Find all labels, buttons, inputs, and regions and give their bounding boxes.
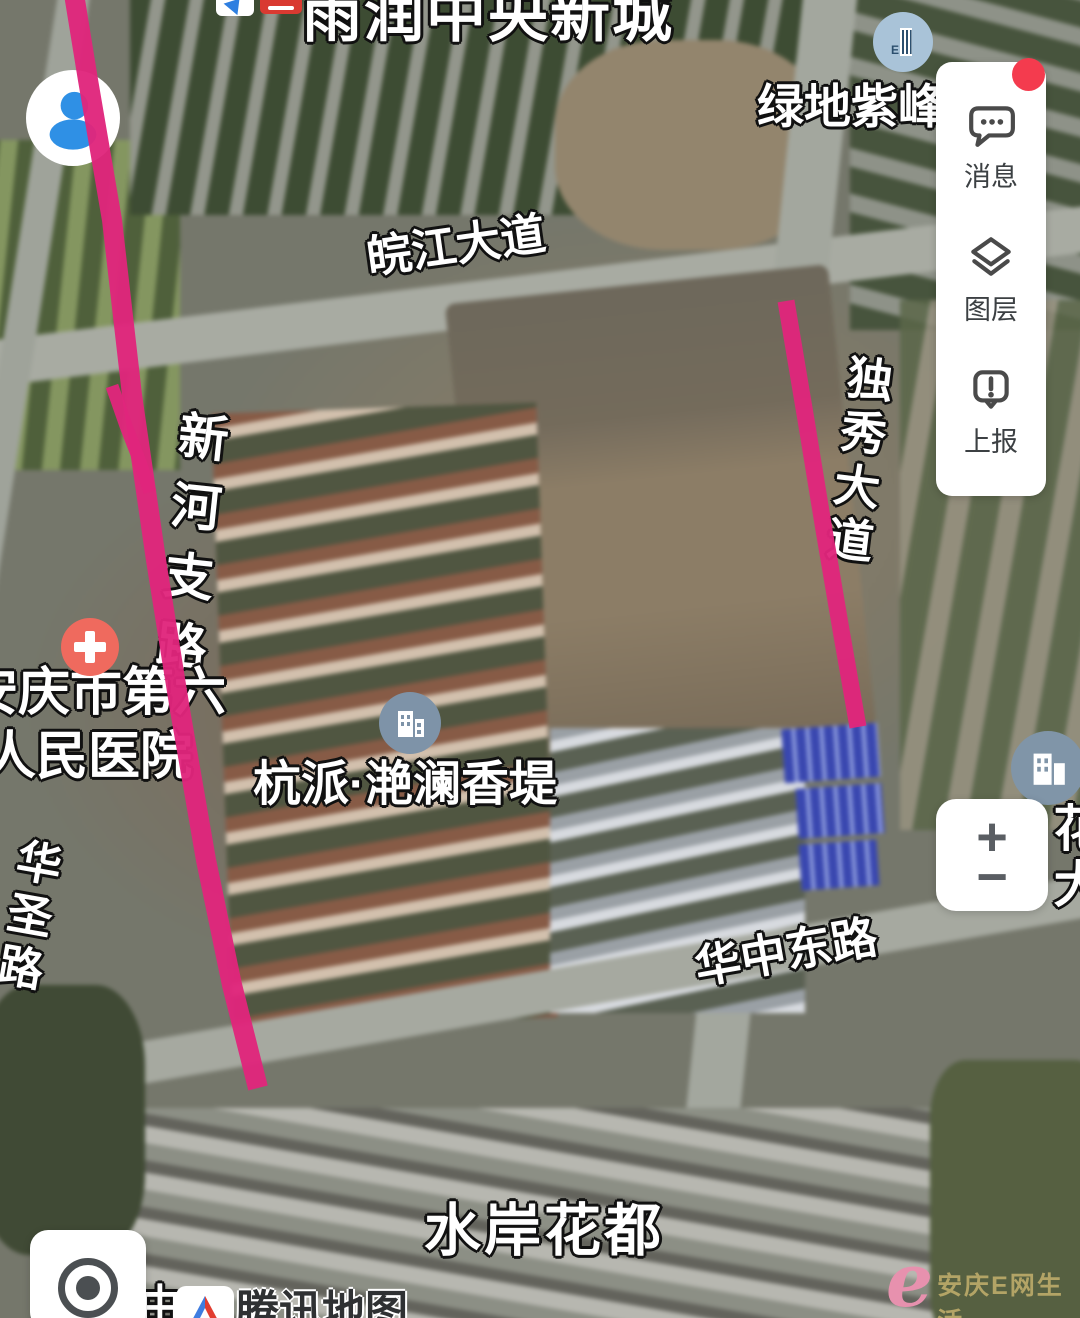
red-badge-app-icon[interactable] xyxy=(260,0,302,14)
chat-bubble-icon xyxy=(966,99,1016,149)
zoom-out-button[interactable]: − xyxy=(976,859,1008,897)
map-label-huada-partial: 花大 xyxy=(1048,802,1080,914)
tencent-maps-wordmark: 腾讯地图 xyxy=(236,1290,408,1318)
layers-label: 图层 xyxy=(964,288,1018,327)
lvdi-letter: E xyxy=(891,43,899,57)
map-label-hangpai-estate: 杭派·滟澜香堤 xyxy=(253,760,557,810)
telegram-style-app-icon[interactable] xyxy=(216,0,254,16)
estate-buildings-marker[interactable] xyxy=(379,692,441,754)
notification-badge xyxy=(1012,58,1045,91)
locate-me-button[interactable] xyxy=(30,1230,146,1318)
map-label-yurun-estate: 雨润中央新城 xyxy=(302,0,674,47)
map-label-hospital-line2: 人民医院 xyxy=(0,730,192,785)
compass-arrow-icon xyxy=(183,1291,227,1318)
map-canvas[interactable]: 雨润中央新城 绿地紫峰 皖江大道 新河支路 独秀大道 安庆市第六 人民医院 杭派… xyxy=(0,0,1080,1318)
messages-label: 消息 xyxy=(964,155,1018,194)
buildings-icon xyxy=(1024,744,1072,792)
map-tools-panel: 消息 图层 上报 xyxy=(936,62,1046,496)
layers-button[interactable]: 图层 xyxy=(964,232,1018,327)
report-icon xyxy=(966,364,1016,414)
zoom-control: + − xyxy=(936,799,1048,911)
messages-button[interactable]: 消息 xyxy=(964,99,1018,194)
hospital-marker[interactable] xyxy=(61,618,119,676)
red-cross-icon xyxy=(74,631,106,663)
target-icon xyxy=(58,1258,118,1318)
tencent-maps-logo xyxy=(176,1286,234,1318)
right-edge-buildings-marker[interactable] xyxy=(1011,731,1080,805)
report-button[interactable]: 上报 xyxy=(964,364,1018,459)
user-avatar-button[interactable] xyxy=(26,70,120,166)
report-label: 上报 xyxy=(964,420,1018,459)
map-label-greenland-zifeng: 绿地紫峰 xyxy=(757,82,945,131)
map-label-shuian-huadu: 水岸花都 xyxy=(424,1202,664,1262)
person-icon xyxy=(40,84,106,152)
site-watermark: e 安庆E网生活 www.aqlife.com xyxy=(886,1252,1080,1318)
lvdi-tower-marker[interactable]: E xyxy=(873,12,933,72)
buildings-icon xyxy=(390,703,430,743)
map-label-hospital-line1: 安庆市第六 xyxy=(0,666,226,721)
watermark-site-name: 安庆E网生活 xyxy=(937,1266,1080,1318)
skyscraper-icon: E xyxy=(883,22,923,62)
watermark-e-logo: e xyxy=(886,1252,933,1311)
layers-icon xyxy=(966,232,1016,282)
